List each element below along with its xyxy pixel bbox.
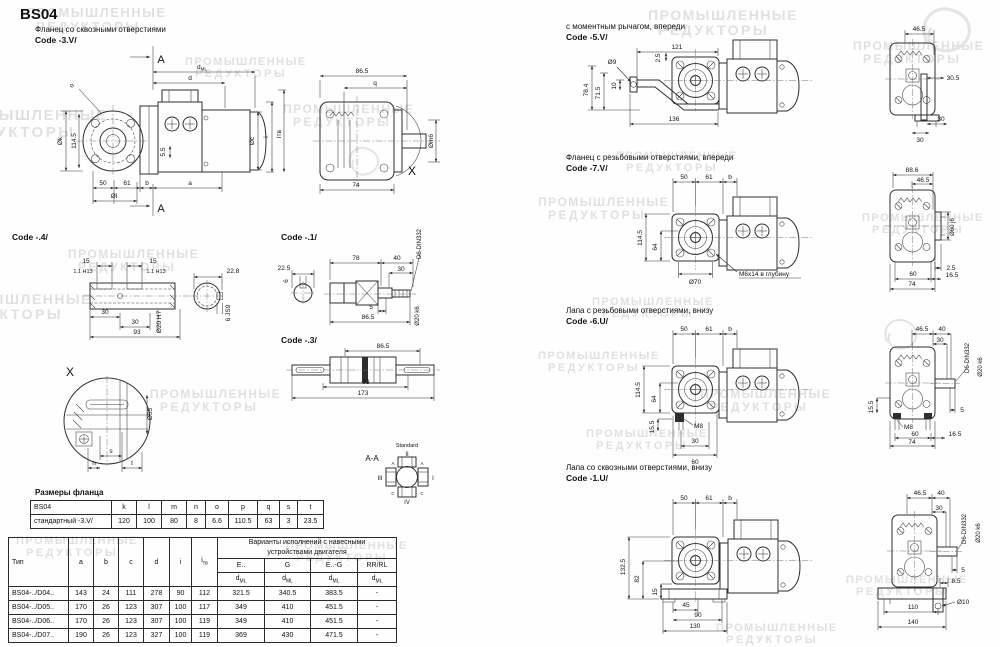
- dim-15: 15: [652, 588, 659, 596]
- dim-o55: Ø55: [147, 407, 154, 420]
- drawing-foot-tapped-side: 46.5 40 30 D6-DIN332 Ø20 k6 15.5 5 M8 60…: [868, 326, 984, 449]
- position-iv: IV: [404, 500, 410, 506]
- dim-121: 121: [672, 44, 683, 51]
- drawing-torque-arm-front: 121 Ø9 2.5 78.4 71.5 10 136: [583, 40, 812, 127]
- dim-ol: Øl: [111, 193, 118, 200]
- dim-50: 50: [99, 180, 107, 187]
- dim-i: i: [263, 136, 270, 137]
- cell: 307: [144, 601, 170, 615]
- cell: 170: [69, 615, 94, 629]
- dim-46-5: 46.5: [917, 177, 930, 184]
- dim-s: s: [109, 448, 113, 455]
- dim-5-5: 5.5: [160, 147, 167, 156]
- dim-o10: Ø10: [957, 599, 970, 606]
- dim-o20-k6: Ø20 k6: [978, 357, 984, 377]
- col-header: E..: [218, 559, 265, 573]
- drawing-flange-tapped-front: 50 61 b 114.5 64 Ø70 М6х14 в глубину: [637, 174, 812, 286]
- dim-30: 30: [916, 137, 924, 144]
- dim-dml: dML: [197, 64, 207, 72]
- mark-a: A: [391, 461, 394, 466]
- cell: 120: [112, 515, 137, 529]
- mark-c: C: [420, 491, 424, 496]
- col-header: Тип: [9, 538, 69, 587]
- dim-itv: iтв: [276, 130, 283, 138]
- table-row: BS04-../D05.. 170 26 123 307 100 117 349…: [9, 601, 397, 615]
- page-title: BS04: [20, 6, 58, 23]
- dim-40: 40: [937, 490, 945, 497]
- dim-78-4: 78.4: [583, 83, 590, 96]
- flange-table-title: Размеры фланца: [35, 488, 104, 497]
- section-code: Code -.4/: [12, 232, 48, 244]
- dim-74: 74: [352, 182, 360, 189]
- dim-130: 130: [690, 623, 701, 630]
- dim-61: 61: [705, 495, 713, 502]
- table-header-row: BS04 k l m n o p q s t: [31, 501, 324, 515]
- cell: 63: [258, 515, 280, 529]
- cell: 410: [265, 601, 311, 615]
- cell: 123: [119, 615, 144, 629]
- dim-2-5: 2.5: [946, 265, 955, 272]
- col-header: E..-G: [311, 559, 358, 573]
- dim-5: 5: [960, 407, 964, 414]
- cell: 451.5: [311, 615, 358, 629]
- section-code: Code -6.U/: [566, 316, 713, 328]
- section-caption: Лапа со сквозными отверстиями, внизу: [566, 462, 712, 473]
- cell: 111: [119, 587, 144, 601]
- cell: 369: [218, 629, 265, 643]
- drawing-code3: 86.5 93 173: [286, 343, 440, 401]
- col-header: i: [170, 538, 192, 587]
- section-flange-through: Фланец со сквозными отверстиями Code -3.…: [35, 24, 166, 47]
- col-header: o: [206, 501, 229, 515]
- dim-a: a: [188, 180, 192, 187]
- drawing-code4: 15 1.1 H13 15 1.1 H13 30 30 93 Ø20 H7 22…: [73, 258, 239, 340]
- dim-b: b: [145, 180, 149, 187]
- cell: 90: [170, 587, 192, 601]
- cell: BS04-../D07..: [9, 629, 69, 643]
- col-header: n: [187, 501, 206, 515]
- dim-22-5: 22.5: [278, 265, 291, 272]
- dim-86-5: 86.5: [356, 68, 369, 75]
- cell: стандартный -3.V/: [31, 515, 112, 529]
- dim-6-js9: 6 JS9: [225, 304, 232, 321]
- dim-61: 61: [123, 180, 131, 187]
- section-code: Code -.3/: [281, 335, 317, 347]
- cell: 23.5: [298, 515, 324, 529]
- section-code: Code -3.V/: [35, 35, 166, 47]
- section-code: Code -.1/: [281, 232, 317, 244]
- drawing-flange-tapped-side: 88.6 46.5 Ø60 j6 2.5 60 16.5 74: [885, 167, 959, 292]
- dim-74: 74: [908, 439, 916, 446]
- col-header: b: [94, 538, 119, 587]
- detail-label-x: X: [66, 365, 74, 379]
- dim-173: 173: [358, 390, 369, 397]
- dim-114-5: 114.5: [635, 382, 642, 398]
- section-code: Code -7.V/: [566, 163, 733, 175]
- dim-93: 93: [362, 379, 370, 386]
- dim-30: 30: [131, 319, 139, 326]
- table-row: стандартный -3.V/ 120 100 80 8 6.6 110.5…: [31, 515, 324, 529]
- dim-ok: Øk: [57, 136, 64, 145]
- table-row: BS04-../D04.. 143 24 111 278 90 112 321.…: [9, 587, 397, 601]
- cell: 26: [94, 601, 119, 615]
- dim-30-5: 30.5: [947, 75, 960, 82]
- dim-d6-din332: D6-DIN332: [962, 513, 968, 544]
- col-header-itv: iтв: [192, 538, 218, 587]
- col-header: RR/RL: [358, 559, 397, 573]
- section-foot-through: Лапа со сквозными отверстиями, внизу Cod…: [566, 462, 712, 485]
- dim-1-1-h13: 1.1 H13: [146, 269, 165, 275]
- cell: 278: [144, 587, 170, 601]
- dim-30: 30: [397, 266, 405, 273]
- cell: 26: [94, 629, 119, 643]
- tap-m8: M8: [694, 423, 703, 430]
- tap-note: М6х14 в глубину: [739, 270, 790, 278]
- section-flange-tapped: Фланец с резьбовыми отверстиями, впереди…: [566, 152, 733, 175]
- dim-64: 64: [651, 395, 658, 403]
- table-row: BS04-../D06.. 170 26 123 307 100 119 349…: [9, 615, 397, 629]
- group-header: Варианты исполнений с навесными устройст…: [218, 538, 397, 559]
- cell: BS04-../D04..: [9, 587, 69, 601]
- cell: BS04-../D06..: [9, 615, 69, 629]
- drawing-main-front: A A dML d Øk 114.5 o 50 61 b a: [57, 46, 286, 216]
- dim-15-5: 15.5: [868, 400, 875, 413]
- table-row: BS04-../D07.. 190 26 123 327 100 119 369…: [9, 629, 397, 643]
- cell: 24: [94, 587, 119, 601]
- dim-46-5: 46.5: [914, 490, 927, 497]
- dim-64: 64: [652, 243, 659, 251]
- dim-5: 5: [369, 304, 373, 311]
- col-header: G: [265, 559, 311, 573]
- section-code4: Code -.4/: [12, 232, 48, 244]
- dim-78: 78: [352, 255, 360, 262]
- cell: BS04-../D05..: [9, 601, 69, 615]
- tap-m8: M8: [904, 424, 913, 431]
- section-foot-tapped: Лапа с резьбовыми отверстиями, внизу Cod…: [566, 305, 713, 328]
- dim-88-6: 88.6: [906, 167, 919, 174]
- dim-15: 15: [149, 258, 157, 265]
- variants-table: Тип a b c d i iтв Варианты исполнений с …: [8, 537, 397, 643]
- cell: 349: [218, 601, 265, 615]
- cell: -: [358, 601, 397, 615]
- dim-30: 30: [937, 116, 945, 123]
- col-header: k: [112, 501, 137, 515]
- dim-o9: Ø9: [608, 59, 617, 66]
- dim-22-8: 22.8: [227, 268, 240, 275]
- dim-50: 50: [680, 495, 688, 502]
- detail-label-x: X: [408, 164, 416, 178]
- dim-q: q: [373, 80, 377, 87]
- cell: 471.5: [311, 629, 358, 643]
- dim-30: 30: [691, 438, 699, 445]
- cell: 307: [144, 615, 170, 629]
- col-header: d: [144, 538, 170, 587]
- dim-oc: Øc: [249, 136, 256, 145]
- cell: 190: [69, 629, 94, 643]
- dim-46-5: 46.5: [913, 26, 926, 33]
- dim-71-5: 71.5: [595, 86, 602, 99]
- position-i: I: [432, 476, 434, 482]
- section-code1: Code -.1/: [281, 232, 317, 244]
- dim-t: t: [131, 460, 133, 467]
- section-code: Code -5.V/: [566, 32, 685, 44]
- dim-o20-k6: Ø20 k6: [976, 523, 982, 543]
- cell: -: [358, 629, 397, 643]
- position-iii: III: [377, 476, 382, 482]
- dim-30: 30: [935, 505, 943, 512]
- mark-a: A: [420, 461, 423, 466]
- cell: 170: [69, 601, 94, 615]
- section-caption: с моментным рычагом, впереди: [566, 21, 685, 32]
- dim-40: 40: [393, 255, 401, 262]
- col-header: l: [137, 501, 162, 515]
- dim-45: 45: [682, 602, 690, 609]
- dim-40: 40: [938, 326, 946, 333]
- cell: 100: [137, 515, 162, 529]
- dim-b: b: [728, 326, 732, 333]
- dim-o60-j6: Ø60 j6: [950, 218, 956, 236]
- dim-46-5: 46.5: [916, 326, 929, 333]
- section-code3: Code -.3/: [281, 335, 317, 347]
- drawing-x-detail: X Ø55 s n t: [64, 365, 154, 472]
- dim-10: 10: [611, 82, 618, 90]
- cell: -: [358, 615, 397, 629]
- section-label-a: A: [157, 54, 165, 66]
- flange-dimensions-table: BS04 k l m n o p q s t стандартный -3.V/…: [30, 500, 324, 529]
- cell: 26: [94, 615, 119, 629]
- dim-15-5: 15.5: [649, 420, 656, 433]
- dim-30: 30: [101, 309, 109, 316]
- cell: 340.5: [265, 587, 311, 601]
- col-header: BS04: [31, 501, 112, 515]
- col-header-dml: dML: [218, 573, 265, 587]
- drawing-section-aa: A-A Standard II III I IV A A C C: [365, 443, 434, 506]
- col-header: t: [298, 501, 324, 515]
- drawing-foot-through-side: 46.5 40 30 D6-DIN332 Ø20 k6 5 8.5 Ø10 11…: [878, 490, 982, 630]
- cell: 410: [265, 615, 311, 629]
- cell: 100: [170, 601, 192, 615]
- dim-o70: Ø70: [689, 279, 702, 286]
- col-header: a: [69, 538, 94, 587]
- dim-114-5: 114.5: [71, 133, 78, 149]
- dim-60: 60: [909, 271, 917, 278]
- dim-d: d: [188, 75, 192, 82]
- cell: 110.5: [229, 515, 258, 529]
- cell: 8: [187, 515, 206, 529]
- dim-114-5: 114.5: [637, 230, 644, 246]
- dim-74: 74: [908, 281, 916, 288]
- cell: -: [358, 587, 397, 601]
- section-caption: Лапа с резьбовыми отверстиями, внизу: [566, 305, 713, 316]
- col-header: q: [258, 501, 280, 515]
- col-header: c: [119, 538, 144, 587]
- cell: 100: [170, 615, 192, 629]
- drawing-main-side: 86.5 q Øm6 74 X: [313, 68, 440, 194]
- mark-c: C: [391, 491, 395, 496]
- cell: 3: [280, 515, 298, 529]
- dim-5: 5: [961, 567, 965, 574]
- cell: 6.6: [206, 515, 229, 529]
- drawing-foot-through-front: 50 61 b 132.5 82 15 45 90 130: [620, 495, 812, 634]
- dim-90: 90: [694, 612, 702, 619]
- dim-1-1-h13: 1.1 H13: [73, 269, 92, 275]
- col-header-dml: dML: [358, 573, 397, 587]
- table-header-row: Тип a b c d i iтв Варианты исполнений с …: [9, 538, 397, 559]
- cell: 117: [192, 601, 218, 615]
- dim-b: b: [728, 495, 732, 502]
- dim-15: 15: [82, 258, 90, 265]
- cell: 143: [69, 587, 94, 601]
- dim-16-5: 16.5: [946, 272, 959, 279]
- cell: 349: [218, 615, 265, 629]
- dim-8-5: 8.5: [951, 578, 960, 585]
- dim-30: 30: [936, 337, 944, 344]
- cell: 112: [192, 587, 218, 601]
- cell: 327: [144, 629, 170, 643]
- dim-132-5: 132.5: [620, 558, 627, 575]
- dim-82: 82: [634, 575, 641, 583]
- col-header: p: [229, 501, 258, 515]
- section-label-a: A: [157, 203, 165, 215]
- dim-o20-h7: Ø20 H7: [156, 310, 163, 333]
- col-header: m: [162, 501, 187, 515]
- dim-93: 93: [133, 329, 141, 336]
- cell: 80: [162, 515, 187, 529]
- col-header-dml: dML: [265, 573, 311, 587]
- dim-n: n: [92, 460, 96, 467]
- drawing-foot-tapped-front: 50 61 b 114.5 64 M8 15.5 30 60: [635, 326, 812, 466]
- section-torque-arm: с моментным рычагом, впереди Code -5.V/: [566, 21, 685, 44]
- dim-o: o: [68, 82, 76, 90]
- cell: 119: [192, 615, 218, 629]
- cell: 100: [170, 629, 192, 643]
- dim-o20-k6: Ø20 k6: [415, 306, 421, 326]
- cell: 123: [119, 601, 144, 615]
- dim-140: 140: [908, 619, 919, 626]
- cell: 383.5: [311, 587, 358, 601]
- dim-110: 110: [908, 604, 919, 611]
- dim-136: 136: [669, 116, 680, 123]
- dim-16-5: 16.5: [949, 431, 962, 438]
- catalog-page: ПРОМЫШЛЕННЫЕРЕДУКТОРЫ ПРОМЫШЛЕННЫЕРЕДУКТ…: [0, 0, 1000, 647]
- section-aa-label: A-A: [365, 454, 379, 463]
- col-header-dml: dML: [311, 573, 358, 587]
- dim-60: 60: [911, 431, 919, 438]
- section-caption: Фланец с резьбовыми отверстиями, впереди: [566, 152, 733, 163]
- drawing-torque-arm-side: 46.5 30.5 30 30: [885, 26, 960, 144]
- dim-86-5: 86.5: [377, 343, 390, 350]
- dim-d6-din332: D6-DIN332: [965, 342, 971, 373]
- cell: 321.5: [218, 587, 265, 601]
- dim-6: 6: [283, 279, 290, 283]
- cell: 119: [192, 629, 218, 643]
- dim-2-5: 2.5: [655, 53, 662, 62]
- section-caption: Фланец со сквозными отверстиями: [35, 24, 166, 35]
- standard-label: Standard: [396, 443, 418, 449]
- cell: 123: [119, 629, 144, 643]
- cell: 430: [265, 629, 311, 643]
- dim-om: Øm6: [428, 134, 435, 148]
- dim-86-5: 86.5: [362, 314, 375, 321]
- col-header: s: [280, 501, 298, 515]
- cell: 451.5: [311, 601, 358, 615]
- section-code: Code -1.U/: [566, 473, 712, 485]
